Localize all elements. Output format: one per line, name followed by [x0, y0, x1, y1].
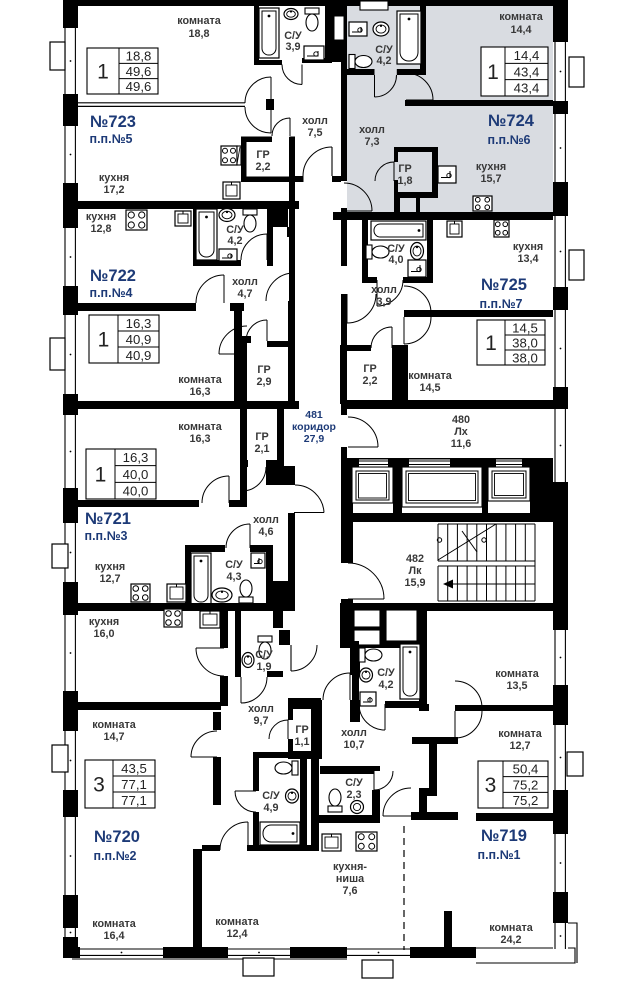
svg-text:ГР: ГР: [398, 163, 411, 175]
svg-text:4,6: 4,6: [258, 526, 273, 538]
svg-text:481: 481: [305, 409, 323, 421]
svg-text:ГР: ГР: [363, 363, 376, 375]
svg-text:№723: №723: [90, 113, 136, 131]
svg-text:1: 1: [98, 329, 110, 352]
svg-text:14,4: 14,4: [514, 48, 540, 63]
svg-text:7,3: 7,3: [364, 136, 379, 148]
svg-text:43,4: 43,4: [514, 81, 540, 96]
svg-text:комната: комната: [489, 922, 534, 934]
svg-text:комната: комната: [498, 728, 543, 740]
svg-text:комната: комната: [215, 916, 260, 928]
svg-text:17,2: 17,2: [103, 184, 124, 196]
svg-text:2,9: 2,9: [256, 376, 271, 388]
svg-text:С/У: С/У: [225, 559, 243, 571]
svg-text:кухня: кухня: [513, 241, 543, 253]
svg-text:13,4: 13,4: [517, 253, 538, 265]
svg-text:16,3: 16,3: [189, 386, 210, 398]
svg-text:№721: №721: [85, 510, 131, 528]
svg-text:9,7: 9,7: [253, 715, 268, 727]
svg-text:12,8: 12,8: [90, 223, 111, 235]
svg-text:38,0: 38,0: [512, 350, 538, 365]
svg-text:1: 1: [485, 332, 497, 355]
svg-text:43,5: 43,5: [121, 761, 147, 776]
svg-text:ГР: ГР: [257, 364, 270, 376]
svg-text:2,2: 2,2: [255, 161, 270, 173]
svg-text:16,0: 16,0: [93, 628, 114, 640]
svg-text:№719: №719: [481, 827, 527, 845]
svg-text:комната: комната: [178, 421, 223, 433]
svg-text:С/У: С/У: [262, 790, 280, 802]
svg-text:п.п.№7: п.п.№7: [480, 297, 523, 311]
svg-text:75,2: 75,2: [513, 777, 539, 792]
svg-text:16,3: 16,3: [189, 433, 210, 445]
svg-text:№724: №724: [488, 112, 535, 130]
svg-text:4,7: 4,7: [237, 288, 252, 300]
svg-text:16,3: 16,3: [126, 316, 152, 331]
svg-text:2,3: 2,3: [346, 789, 361, 801]
svg-text:кухня: кухня: [86, 211, 116, 223]
svg-text:С/У: С/У: [345, 777, 363, 789]
svg-text:40,9: 40,9: [126, 332, 152, 347]
svg-text:холл: холл: [248, 703, 274, 715]
svg-text:кухня: кухня: [95, 561, 125, 573]
svg-text:1: 1: [95, 464, 107, 487]
svg-text:холл: холл: [302, 115, 328, 127]
svg-text:11,6: 11,6: [451, 438, 471, 450]
svg-text:№722: №722: [90, 267, 136, 285]
svg-text:п.п.№6: п.п.№6: [488, 133, 531, 147]
svg-text:холл: холл: [232, 276, 258, 288]
svg-text:40,0: 40,0: [123, 467, 149, 482]
svg-text:18,8: 18,8: [126, 48, 152, 63]
svg-text:49,6: 49,6: [126, 64, 152, 79]
svg-text:холл: холл: [253, 514, 279, 526]
svg-text:4,2: 4,2: [378, 679, 393, 691]
svg-text:комната: комната: [92, 719, 137, 731]
svg-text:комната: комната: [499, 11, 544, 23]
svg-text:40,0: 40,0: [123, 483, 149, 498]
svg-text:482: 482: [406, 553, 424, 565]
svg-text:1: 1: [97, 61, 109, 84]
svg-text:п.п.№5: п.п.№5: [90, 132, 133, 146]
svg-text:кухня-: кухня-: [333, 861, 367, 873]
svg-text:7,6: 7,6: [342, 885, 357, 897]
svg-text:1,1: 1,1: [294, 736, 309, 748]
svg-text:3,9: 3,9: [285, 41, 300, 53]
svg-text:комната: комната: [177, 15, 222, 27]
svg-text:4,2: 4,2: [376, 55, 391, 67]
svg-text:С/У: С/У: [377, 667, 395, 679]
svg-text:40,9: 40,9: [126, 348, 152, 363]
svg-text:кухня: кухня: [99, 172, 129, 184]
svg-text:холл: холл: [359, 124, 385, 136]
svg-text:18,8: 18,8: [188, 28, 209, 40]
svg-text:14,7: 14,7: [103, 731, 124, 743]
svg-text:Лх: Лх: [454, 426, 468, 438]
svg-text:7,5: 7,5: [307, 127, 322, 139]
svg-text:4,3: 4,3: [226, 571, 241, 583]
svg-text:комната: комната: [178, 374, 223, 386]
svg-text:комната: комната: [495, 668, 540, 680]
svg-text:3: 3: [485, 774, 497, 797]
svg-text:холл: холл: [341, 727, 367, 739]
svg-text:комната: комната: [408, 370, 453, 382]
svg-text:14,5: 14,5: [419, 382, 440, 394]
svg-text:холл: холл: [371, 284, 397, 296]
svg-text:50,4: 50,4: [513, 762, 539, 777]
svg-text:п.п.№2: п.п.№2: [94, 849, 137, 863]
svg-text:16,4: 16,4: [103, 930, 124, 942]
svg-text:12,7: 12,7: [509, 740, 530, 752]
svg-text:п.п.№4: п.п.№4: [90, 286, 133, 300]
svg-text:43,4: 43,4: [514, 64, 540, 79]
svg-text:п.п.№3: п.п.№3: [85, 529, 128, 543]
svg-text:480: 480: [452, 414, 470, 426]
svg-text:2,2: 2,2: [362, 375, 377, 387]
svg-text:С/У: С/У: [255, 649, 273, 661]
svg-text:кухня: кухня: [89, 616, 119, 628]
svg-text:27,9: 27,9: [304, 433, 325, 445]
svg-text:4,2: 4,2: [227, 235, 242, 247]
svg-text:1,9: 1,9: [256, 661, 271, 673]
svg-text:Лк: Лк: [409, 565, 423, 577]
svg-text:п.п.№1: п.п.№1: [478, 848, 521, 862]
svg-text:1: 1: [487, 61, 499, 84]
svg-text:ниша: ниша: [336, 873, 365, 885]
svg-text:15,9: 15,9: [404, 577, 425, 589]
svg-text:24,2: 24,2: [500, 934, 521, 946]
svg-text:38,0: 38,0: [512, 335, 538, 350]
svg-text:77,1: 77,1: [121, 793, 147, 808]
svg-text:16,3: 16,3: [123, 450, 149, 465]
svg-text:кухня: кухня: [476, 161, 506, 173]
svg-text:3: 3: [93, 774, 105, 797]
svg-text:49,6: 49,6: [126, 79, 152, 94]
svg-text:4,0: 4,0: [388, 254, 403, 266]
svg-text:2,1: 2,1: [254, 443, 269, 455]
svg-text:ГР: ГР: [295, 724, 308, 736]
svg-text:12,4: 12,4: [226, 928, 247, 940]
svg-text:ГР: ГР: [256, 149, 269, 161]
svg-text:75,2: 75,2: [513, 793, 539, 808]
svg-text:№720: №720: [94, 828, 140, 846]
svg-text:77,1: 77,1: [121, 777, 147, 792]
svg-text:13,5: 13,5: [506, 680, 527, 692]
svg-text:комната: комната: [92, 918, 137, 930]
svg-text:12,7: 12,7: [99, 573, 120, 585]
svg-text:коридор: коридор: [292, 421, 336, 433]
svg-text:№725: №725: [481, 276, 527, 294]
svg-text:14,5: 14,5: [512, 320, 538, 335]
svg-text:1,8: 1,8: [397, 175, 412, 187]
svg-text:4,9: 4,9: [263, 802, 278, 814]
svg-text:3,9: 3,9: [376, 296, 391, 308]
svg-text:15,7: 15,7: [480, 173, 501, 185]
svg-text:ГР: ГР: [255, 431, 268, 443]
svg-text:14,4: 14,4: [510, 24, 531, 36]
svg-text:10,7: 10,7: [343, 739, 364, 751]
